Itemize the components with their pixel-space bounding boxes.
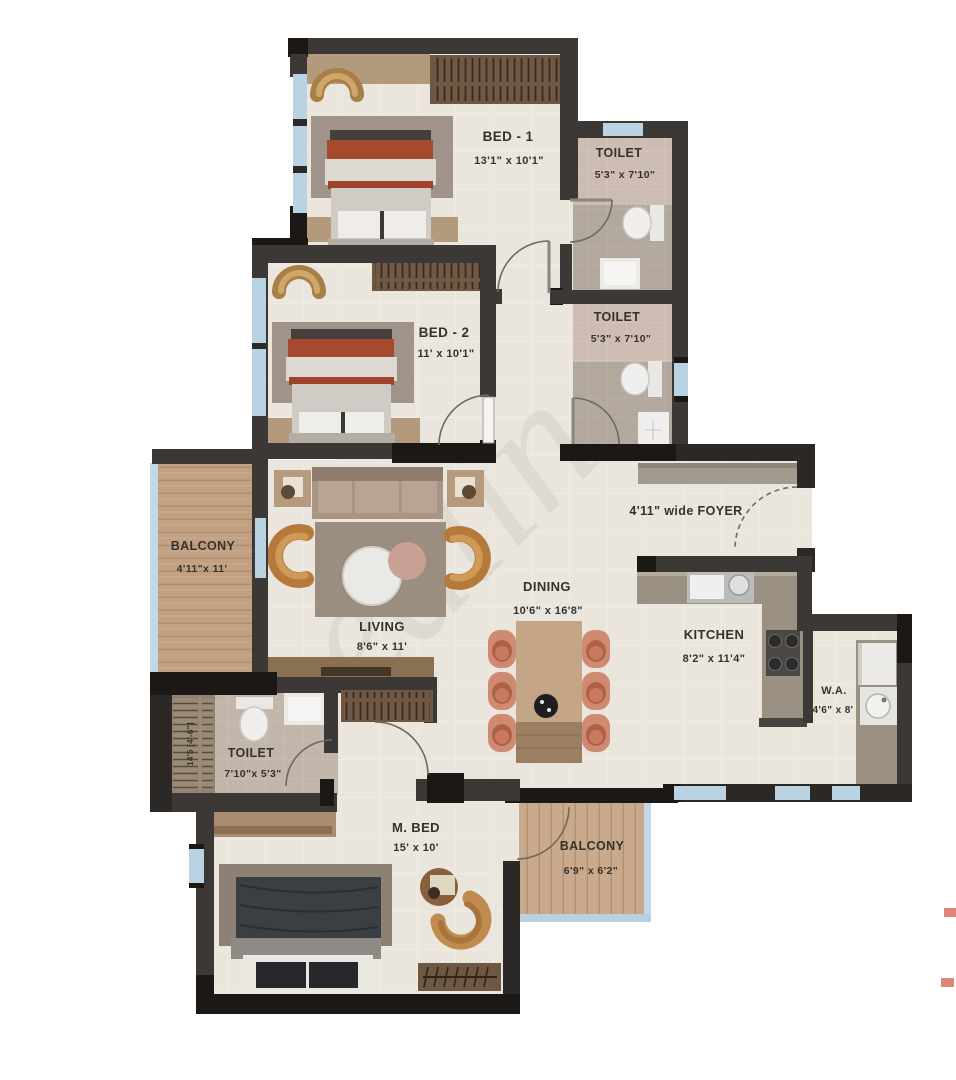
svg-text:TOILET: TOILET [594,310,641,324]
svg-text:15' x 10': 15' x 10' [393,842,439,854]
svg-text:BED - 1: BED - 1 [483,129,534,144]
svg-text:10'6" x 16'8": 10'6" x 16'8" [513,605,583,617]
svg-text:4'11"x 11': 4'11"x 11' [177,563,228,575]
svg-text:LIVING: LIVING [359,619,405,634]
svg-text:8'2" x 11'4": 8'2" x 11'4" [683,653,746,665]
svg-text:4'11" wide FOYER: 4'11" wide FOYER [629,504,742,518]
svg-text:6'9" x 6'2": 6'9" x 6'2" [564,865,618,877]
svg-text:TOILET: TOILET [228,746,275,760]
svg-text:13'1" x 10'1": 13'1" x 10'1" [474,155,544,167]
svg-text:M. BED: M. BED [392,820,440,835]
svg-text:11' x 10'1": 11' x 10'1" [417,348,474,360]
svg-text:DINING: DINING [523,579,571,594]
svg-text:7'10"x 5'3": 7'10"x 5'3" [224,768,281,780]
svg-text:BALCONY: BALCONY [560,839,625,853]
svg-text:BED - 2: BED - 2 [419,325,470,340]
svg-text:5'3" x 7'10": 5'3" x 7'10" [591,333,652,345]
svg-text:5'3" x 7'10": 5'3" x 7'10" [595,169,656,181]
svg-text:W.A.: W.A. [821,685,846,697]
svg-text:TOILET: TOILET [596,146,643,160]
svg-text:4'6" x 8': 4'6" x 8' [813,705,854,716]
svg-text:14'5 [4'-6"]: 14'5 [4'-6"] [186,722,195,766]
svg-text:8'6" x 11': 8'6" x 11' [357,641,408,653]
svg-text:BALCONY: BALCONY [171,539,236,553]
svg-text:KITCHEN: KITCHEN [684,627,745,642]
